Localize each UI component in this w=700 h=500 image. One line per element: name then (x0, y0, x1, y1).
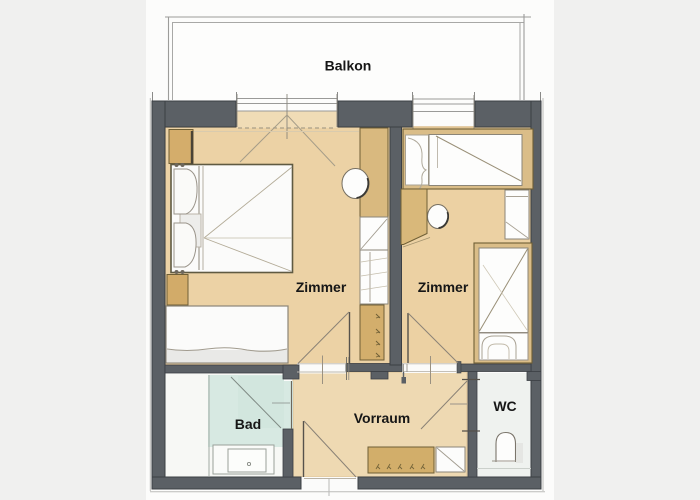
svg-text:Bad: Bad (235, 416, 261, 432)
svg-text:Zimmer: Zimmer (418, 279, 469, 295)
svg-text:WC: WC (493, 398, 516, 414)
svg-text:Balkon: Balkon (325, 58, 372, 74)
svg-text:Vorraum: Vorraum (354, 410, 411, 426)
svg-text:Zimmer: Zimmer (296, 279, 347, 295)
